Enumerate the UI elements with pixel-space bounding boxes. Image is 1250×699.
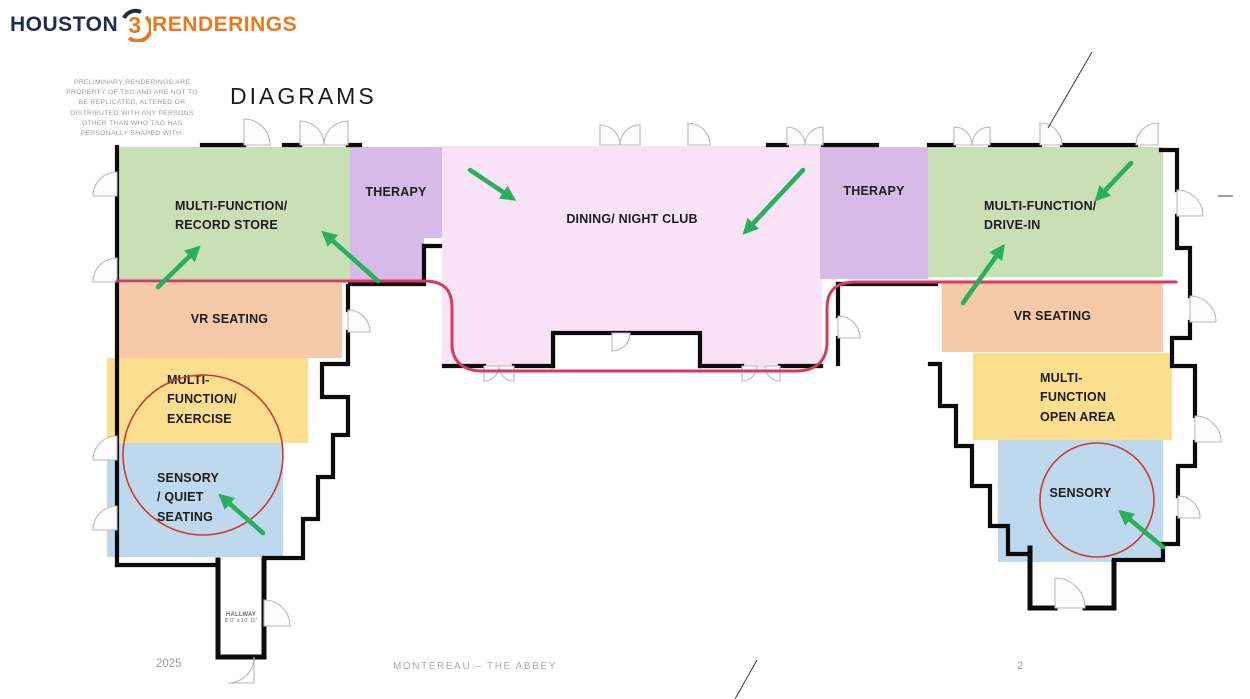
page-title: DIAGRAMS xyxy=(230,83,377,110)
logo-word-renderings: RENDERINGS xyxy=(152,13,297,37)
zone-label: SENSORY xyxy=(998,484,1163,503)
footer-year: 2025 xyxy=(156,658,182,670)
zone-right-sensory: SENSORY xyxy=(998,440,1163,562)
zone-label: MULTI-FUNCTION/ DRIVE-IN xyxy=(984,197,1096,236)
footer-page-number: 2 xyxy=(1017,660,1023,672)
zone-label: VR SEATING xyxy=(942,307,1163,326)
zone-left-vr-seating: VR SEATING xyxy=(117,283,342,358)
logo-3-swoosh-icon: 3 xyxy=(119,8,151,42)
zone-dining-night-club: DINING/ NIGHT CLUB xyxy=(442,146,822,332)
logo-word-houston: HOUSTON xyxy=(10,13,118,37)
zone-right-therapy: THERAPY xyxy=(820,147,928,279)
zone-right-vr-seating: VR SEATING xyxy=(942,281,1163,352)
hallway-dimensions: 8' 0" x 16' 11" xyxy=(219,618,263,624)
zone-left-multifunction-record-store: MULTI-FUNCTION/ RECORD STORE xyxy=(117,147,350,282)
zone-label: THERAPY xyxy=(820,182,928,201)
zone-label: THERAPY xyxy=(350,183,442,202)
zone-label: MULTI- FUNCTION/ EXERCISE xyxy=(167,371,237,429)
zone-left-sensory-quiet-seating: SENSORY / QUIET SEATING xyxy=(107,443,283,557)
zone-label: VR SEATING xyxy=(117,310,342,329)
zone-left-multifunction-exercise: MULTI- FUNCTION/ EXERCISE xyxy=(107,358,308,443)
zone-right-multifunction-open-area: MULTI- FUNCTION OPEN AREA xyxy=(973,353,1172,440)
zone-left-therapy: THERAPY xyxy=(350,147,442,282)
copyright-disclaimer: PRELIMINARY RENDERINGS ARE PROPERTY OF T… xyxy=(52,78,212,139)
zone-right-multifunction-drive-in: MULTI-FUNCTION/ DRIVE-IN xyxy=(928,147,1163,277)
footer-project-name: MONTEREAU – THE ABBEY xyxy=(330,661,620,672)
zone-dining-night-club-leg-left xyxy=(442,330,556,368)
zone-dining-night-club-leg-right xyxy=(700,330,822,368)
slide: HOUSTON 3 RENDERINGS PRELIMINARY RENDERI… xyxy=(0,0,1250,699)
stray-line-bottom xyxy=(735,660,757,699)
zone-label: SENSORY / QUIET SEATING xyxy=(157,469,219,527)
zone-label: MULTI-FUNCTION/ RECORD STORE xyxy=(175,197,287,236)
houston-renderings-logo: HOUSTON 3 RENDERINGS xyxy=(10,8,297,42)
zone-label: MULTI- FUNCTION OPEN AREA xyxy=(1040,369,1116,427)
svg-text:3: 3 xyxy=(128,12,141,38)
stray-line-top-right xyxy=(1048,52,1092,128)
zone-label: DINING/ NIGHT CLUB xyxy=(442,210,822,229)
hallway-label: HALLWAY 8' 0" x 16' 11" xyxy=(219,612,263,624)
